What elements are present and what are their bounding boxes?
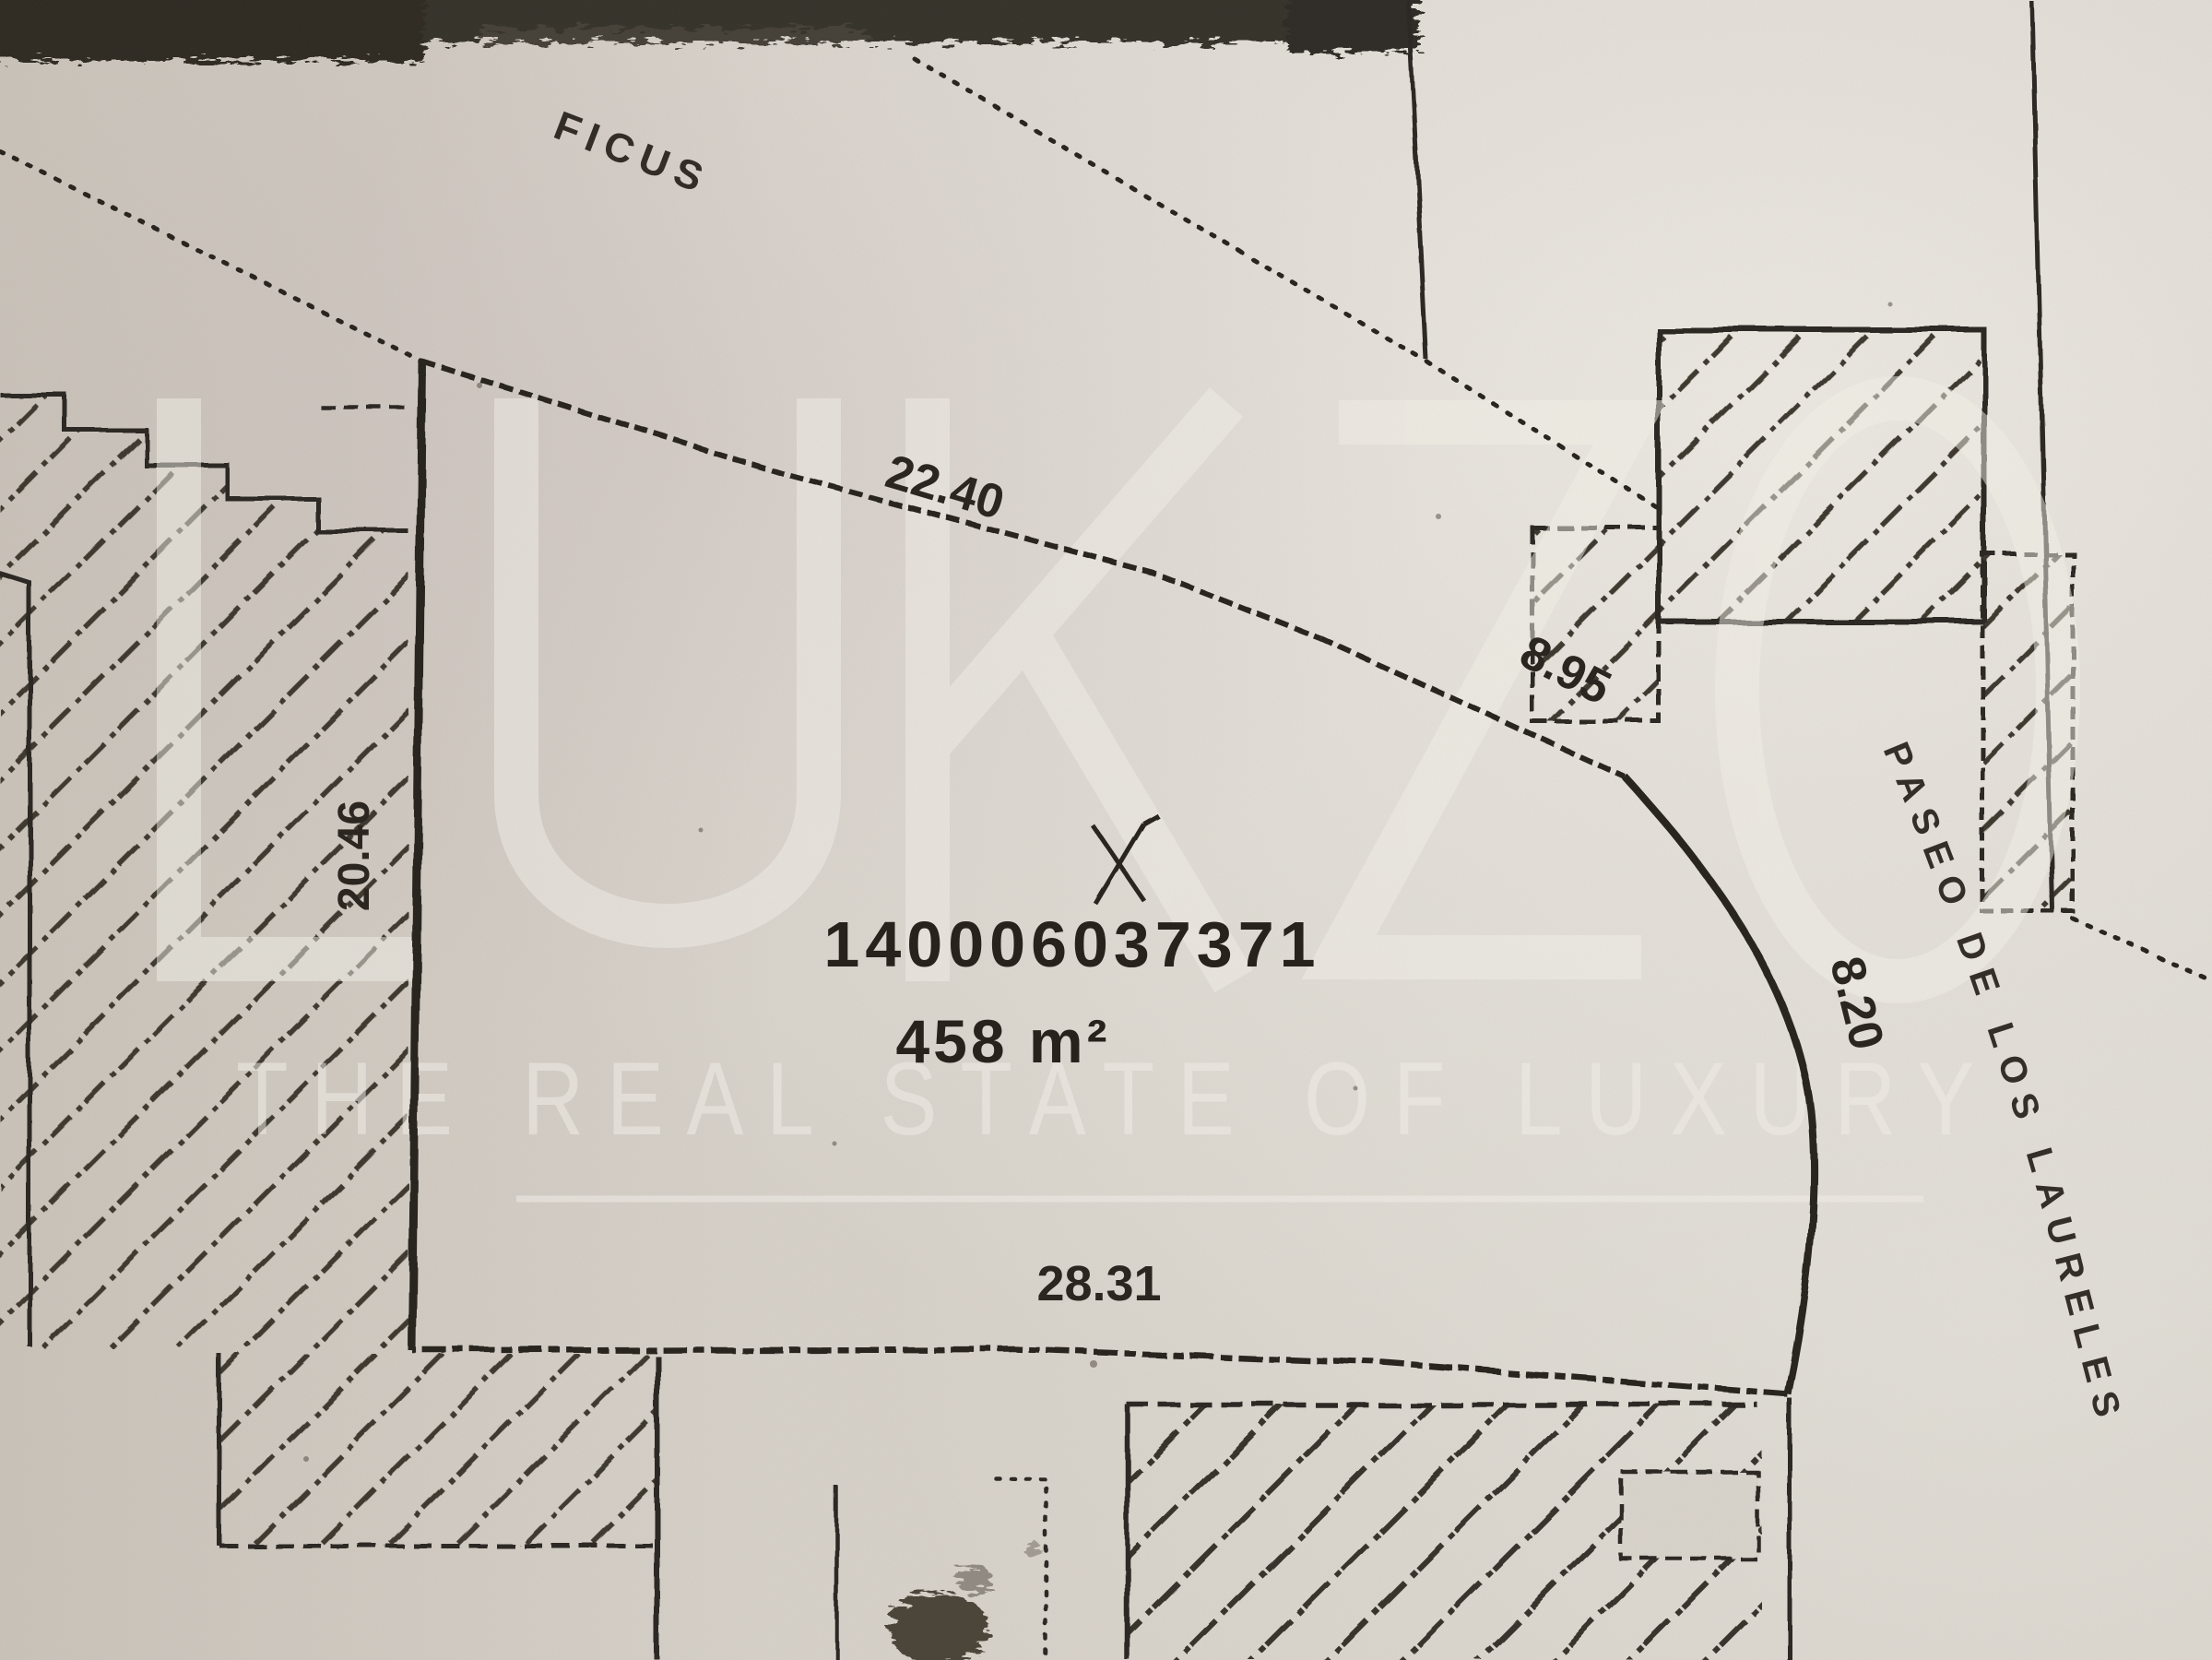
dimension-bottom-label: 28.31 [1036,1256,1161,1311]
scanned-plan-page: THE REAL STATE OF LUXURY FICUS 22.40 8.9… [0,0,2212,1660]
site-plan-canvas: THE REAL STATE OF LUXURY FICUS 22.40 8.9… [0,0,2212,1660]
neighbor-bottom-hatch [219,1354,657,1546]
neighbor-bottom-right-notch [1621,1472,1757,1559]
watermark-tagline: THE REAL STATE OF LUXURY [236,1041,1997,1156]
dimension-left-label: 20.46 [330,800,379,911]
parcel-area-label: 458 m² [895,1007,1110,1075]
building-upper-right-main-hatch [1659,330,1984,622]
parcel-id-label: 140006037371 [823,908,1320,980]
